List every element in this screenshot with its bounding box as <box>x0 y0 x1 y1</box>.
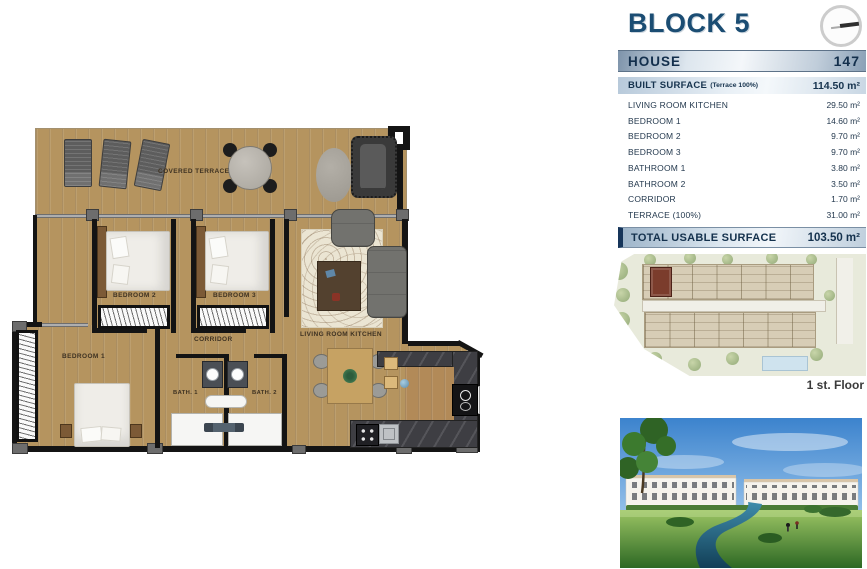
built-surface-bar: BUILT SURFACE (Terrace 100%) 114.50 m² <box>618 77 866 94</box>
built-surface-value: 114.50 m² <box>813 80 860 92</box>
row-value: 1.70 m² <box>831 194 860 204</box>
label-covered-terrace: COVERED TERRACE <box>158 168 229 175</box>
row-value: 9.70 m² <box>831 147 860 157</box>
site-plan <box>614 254 866 376</box>
floor-plan: COVERED TERRACE BEDROOM 2 BEDROOM 3 CORR… <box>0 0 560 569</box>
row-label: CORRIDOR <box>628 194 676 204</box>
coffee-table-decor <box>332 293 340 301</box>
site-tree <box>810 348 823 361</box>
house-number: 147 <box>834 53 860 69</box>
bedroom1-top-window <box>42 323 88 327</box>
bath2-vanity-sink <box>227 361 248 388</box>
label-corridor: CORRIDOR <box>194 336 233 343</box>
bedroom1-right-wall <box>155 327 160 448</box>
table-row: BEDROOM 2 9.70 m² <box>618 129 866 145</box>
site-tree <box>648 352 662 366</box>
highlighted-unit <box>650 267 672 297</box>
site-pool <box>762 356 808 371</box>
site-tree <box>616 288 630 302</box>
kitchen-ext-top-wall <box>408 341 461 346</box>
site-tree <box>726 352 739 365</box>
label-bedroom-2: BEDROOM 2 <box>113 292 156 299</box>
corridor-band <box>642 300 826 312</box>
rendering-image <box>620 418 862 568</box>
site-tree <box>614 312 630 328</box>
bath-top-wall-left <box>176 354 224 358</box>
terrace-table-top <box>228 146 272 190</box>
compass-tail <box>831 26 840 29</box>
bedroom1-nightstand <box>130 424 142 438</box>
row-label: BATHROOM 1 <box>628 163 686 173</box>
row-label: BATHROOM 2 <box>628 179 686 189</box>
site-tree <box>684 252 696 264</box>
total-label: TOTAL USABLE SURFACE <box>631 232 776 244</box>
floor-plan-level-label: 1 st. Floor <box>768 378 864 392</box>
site-tree <box>766 252 778 264</box>
total-surface-bar: TOTAL USABLE SURFACE 103.50 m² <box>618 227 866 248</box>
bath-top-wall-right <box>254 354 284 358</box>
bath-towel-rail <box>205 395 247 408</box>
site-tree <box>610 262 628 280</box>
oven-knob <box>460 390 471 401</box>
kitchen-peninsula <box>405 367 454 420</box>
sun-lounger <box>99 139 132 190</box>
label-bath-2: BATH. 2 <box>252 390 277 396</box>
bedroom2-right-wall <box>171 219 176 333</box>
bedroom3-wardrobe <box>197 305 269 329</box>
left-wall-upper <box>33 215 37 325</box>
compass-icon <box>820 5 862 47</box>
corner-block <box>292 445 306 454</box>
table-row: BATHROOM 1 3.80 m² <box>618 160 866 176</box>
site-tree <box>688 358 701 371</box>
kitchen-stool <box>384 376 398 389</box>
brochure-page: COVERED TERRACE BEDROOM 2 BEDROOM 3 CORR… <box>0 0 867 569</box>
site-road <box>836 258 853 344</box>
bedroom3-bed <box>205 231 269 291</box>
terrace-dining-set <box>222 140 278 196</box>
terrace-daybed-cushions <box>360 144 386 190</box>
bedroom1-wardrobe <box>16 330 38 442</box>
row-value: 31.00 m² <box>826 210 860 220</box>
table-row: CORRIDOR 1.70 m² <box>618 192 866 208</box>
terrace-right-wall <box>397 148 403 215</box>
total-value: 103.50 m² <box>808 232 860 244</box>
dining-table-plant <box>343 369 357 383</box>
living-left-wall <box>284 219 289 317</box>
row-value: 3.80 m² <box>831 163 860 173</box>
living-coffee-table <box>317 261 361 311</box>
oven-knob <box>460 402 471 411</box>
development-rendering <box>620 418 862 568</box>
table-row: TERRACE (100%) 31.00 m² <box>618 207 866 223</box>
table-row: BEDROOM 3 9.70 m² <box>618 144 866 160</box>
surface-table: LIVING ROOM KITCHEN 29.50 m² BEDROOM 1 1… <box>618 97 866 223</box>
kitchen-faucet <box>400 379 409 388</box>
label-bath-1: BATH. 1 <box>173 390 198 396</box>
page-title: BLOCK 5 <box>628 8 750 39</box>
bedroom1-nightstand <box>60 424 72 438</box>
bath-right-wall <box>282 354 287 450</box>
kitchen-hob <box>356 424 379 446</box>
kitchen-oven <box>452 384 478 416</box>
coffee-table-decor <box>325 269 336 278</box>
living-armchair <box>331 209 375 247</box>
building-row-lower <box>644 312 816 348</box>
row-label: TERRACE (100%) <box>628 210 701 220</box>
terrace-rug <box>316 148 352 202</box>
bedroom2-wardrobe <box>98 305 170 329</box>
bedroom3-right-wall <box>270 219 275 333</box>
site-tree <box>622 338 636 352</box>
label-bedroom-3: BEDROOM 3 <box>213 292 256 299</box>
built-surface-label: BUILT SURFACE <box>628 80 707 91</box>
row-value: 14.60 m² <box>826 116 860 126</box>
dining-table <box>327 348 373 404</box>
built-surface-note: (Terrace 100%) <box>710 82 758 89</box>
living-sofa <box>367 246 407 318</box>
row-value: 29.50 m² <box>826 100 860 110</box>
row-value: 3.50 m² <box>831 179 860 189</box>
label-bedroom-1: BEDROOM 1 <box>62 353 105 360</box>
compass-needle <box>840 22 859 28</box>
kitchen-stool <box>384 357 398 370</box>
house-bar: HOUSE 147 <box>618 50 866 72</box>
label-living-room-kitchen: LIVING ROOM KITCHEN <box>300 331 382 338</box>
kitchen-sink-basin <box>383 428 395 440</box>
row-label: LIVING ROOM KITCHEN <box>628 100 728 110</box>
table-row: LIVING ROOM KITCHEN 29.50 m² <box>618 97 866 113</box>
bath1-vanity-sink <box>202 361 223 388</box>
table-row: BEDROOM 1 14.60 m² <box>618 113 866 129</box>
bedroom2-bed <box>106 231 170 291</box>
kitchen-sink <box>379 424 399 444</box>
row-label: BEDROOM 1 <box>628 116 681 126</box>
corner-block <box>12 443 28 454</box>
table-row: BATHROOM 2 3.50 m² <box>618 176 866 192</box>
row-label: BEDROOM 2 <box>628 131 681 141</box>
row-value: 9.70 m² <box>831 131 860 141</box>
bedroom1-bed <box>74 383 130 447</box>
house-label: HOUSE <box>628 54 681 69</box>
sun-lounger <box>64 139 92 187</box>
row-label: BEDROOM 3 <box>628 147 681 157</box>
shower-fixture <box>204 423 244 432</box>
